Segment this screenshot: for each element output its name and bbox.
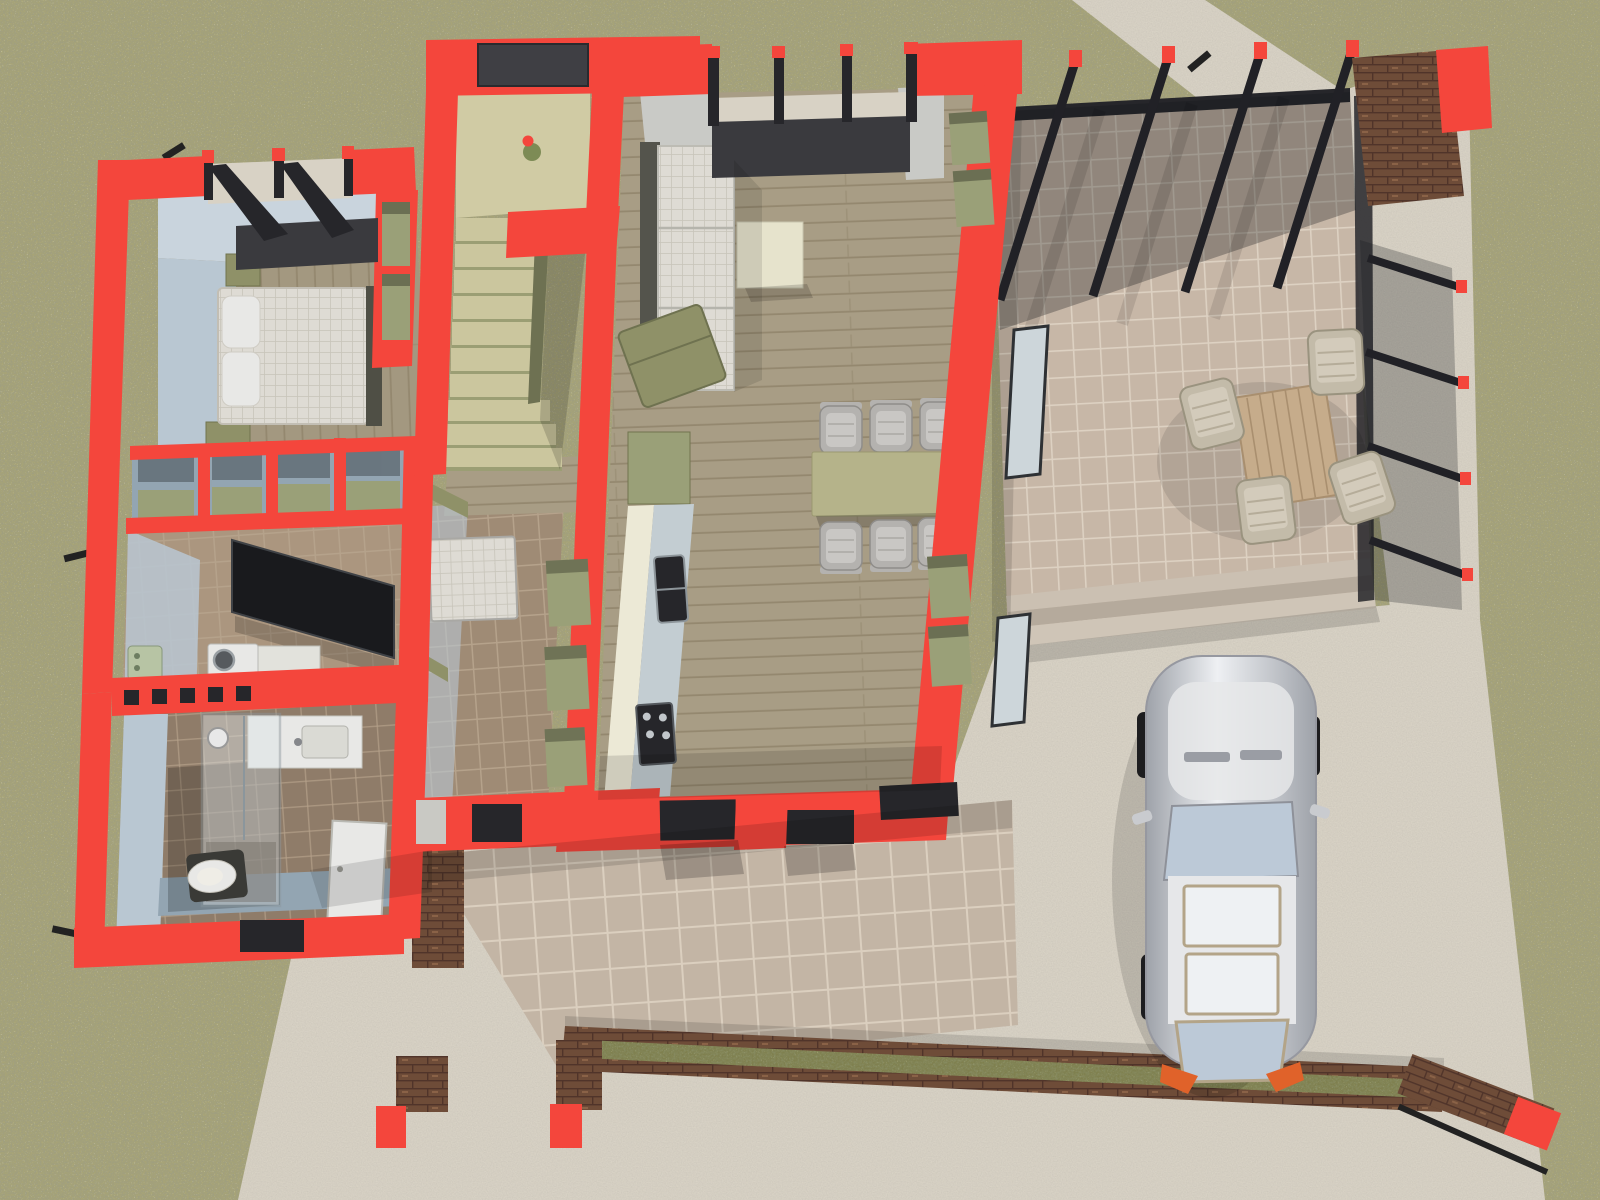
shower-head [208,728,228,748]
dining-chair-1 [820,402,862,454]
plant-flower [523,136,534,147]
dining-chair-5 [870,520,912,572]
entry-door [472,804,522,842]
floorplan-render: 3D rendered cutaway floor plan of a sing… [0,0,1600,1200]
dining-chair-2 [870,400,912,452]
toilet [186,849,249,903]
floorplan-render-stage: 3D rendered cutaway floor plan of a sing… [0,0,1600,1200]
car-sunroof-front [1184,886,1280,946]
outdoor-chair-top [1307,329,1364,396]
outdoor-chair-bottom [1235,475,1296,545]
planter-end-brick [556,1040,602,1110]
sofa-shadow [734,160,762,392]
stair-landing [456,90,590,218]
washer-drum [214,650,234,670]
wall-living-topleft [590,44,712,98]
hall-bench [429,536,518,621]
bathroom-window [240,920,304,952]
bed-pillow-1 [222,296,260,348]
patio-window-2 [992,614,1030,726]
car-sunroof-rear [1186,954,1278,1014]
wall-stair-right [586,92,624,216]
kitchen-green-cabinet [628,432,690,504]
entry-door-jamb [416,800,446,844]
wall-bedroom-top-left [126,156,208,200]
bed-pillow-2 [222,352,260,406]
sink-faucet [294,738,302,746]
dining-chair-4 [820,522,862,574]
car-windshield [1164,802,1298,880]
patio-window-1 [1006,326,1048,478]
silver-car [1112,656,1331,1098]
wall-hall-west [398,436,434,702]
sink-basin [302,726,348,758]
car-hood [1168,682,1294,800]
brick-pillar-red-cut [1436,46,1492,133]
planter-end-red-cut [550,1104,582,1148]
kitchen-sink [654,555,689,623]
entry-canopy [478,44,588,86]
small-brick-planter [396,1056,448,1112]
boiler [128,646,162,680]
wall-bedroom-top-right [348,147,416,195]
small-planter-red-cut [376,1106,406,1148]
car-body-group [1131,656,1331,1094]
house [74,36,1048,968]
